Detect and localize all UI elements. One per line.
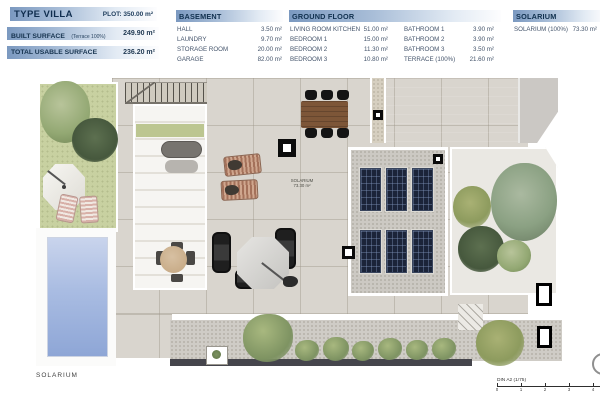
dining-chair	[337, 128, 349, 138]
solarium-area-label-line2: 73.30 m²	[286, 184, 318, 189]
outdoor-sofa	[161, 141, 202, 158]
room-area: 20.00 m²	[258, 46, 282, 53]
room-area: 3.50 m²	[261, 26, 282, 33]
room-area: 82.00 m²	[258, 56, 282, 63]
room-label: LIVING ROOM KITCHEN	[290, 26, 360, 33]
total-usable-surface-bar: TOTAL USABLE SURFACE 236.20 m²	[7, 46, 159, 59]
dining-chair	[305, 90, 317, 100]
dining-chair	[321, 128, 333, 138]
room-label: BATHROOM 3	[404, 46, 444, 53]
utility-box	[537, 326, 552, 348]
table-row: TERRACE (100%) 21.60 m²	[403, 54, 495, 64]
room-label: LAUNDRY	[177, 36, 206, 43]
room-area: 21.60 m²	[470, 56, 494, 63]
room-area: 3.50 m²	[473, 46, 494, 53]
exterior-stairs	[458, 304, 483, 330]
scale-bar	[497, 386, 600, 387]
room-area: 10.80 m²	[364, 56, 388, 63]
room-label: GARAGE	[177, 56, 203, 63]
parasol-hub	[62, 185, 66, 189]
basement-title: BASEMENT	[179, 12, 222, 21]
roof-lower-floor	[386, 78, 520, 143]
coffee-table	[165, 160, 198, 173]
basement-title-bar: BASEMENT	[176, 10, 283, 22]
solar-panel	[360, 168, 381, 211]
room-label: TERRACE (100%)	[404, 56, 455, 63]
solarium-section: SOLARIUM SOLARIUM (100%) 73.30 m²	[513, 10, 600, 35]
scale-tick	[497, 383, 498, 386]
solarium-area-label: SOLARIUM 73.30 m²	[286, 179, 318, 189]
solarium-title: SOLARIUM	[516, 12, 557, 21]
room-area: 3.90 m²	[473, 36, 494, 43]
table-row: HALL 3.50 m²	[176, 25, 283, 35]
room-label: STORAGE ROOM	[177, 46, 228, 53]
skylight-marker	[278, 139, 296, 157]
bush	[497, 240, 531, 272]
ground-floor-left-column: LIVING ROOM KITCHEN 51.00 m² BEDROOM 1 1…	[289, 25, 389, 64]
ground-floor-title-bar: GROUND FLOOR	[289, 10, 501, 22]
page-title: TYPE VILLA	[14, 9, 73, 20]
solar-panel	[386, 168, 407, 211]
sun-lounger	[212, 232, 231, 273]
table-row: SOLARIUM (100%) 73.30 m²	[513, 25, 598, 35]
scale-tick	[545, 383, 546, 386]
chair	[186, 251, 195, 265]
table-row: BATHROOM 3 3.50 m²	[403, 45, 495, 55]
room-area: 9.70 m²	[261, 36, 282, 43]
scale-tick-label: 0	[494, 388, 501, 392]
scale-tick-label: 4	[590, 388, 597, 392]
olive-tree	[453, 186, 491, 228]
room-area: 3.90 m²	[473, 26, 494, 33]
floor-plan-page: TYPE VILLA PLOT: 350.00 m² BUILT SURFACE…	[0, 0, 600, 400]
room-label: BATHROOM 1	[404, 26, 444, 33]
palm-tree	[458, 226, 504, 272]
room-area: 15.00 m²	[364, 36, 388, 43]
roof-corner	[520, 78, 558, 143]
solarium-title-bar: SOLARIUM	[513, 10, 600, 22]
plot-area-value: PLOT: 350.00 m²	[103, 11, 153, 18]
tree	[476, 320, 524, 366]
column-marker	[373, 110, 383, 120]
solar-panel	[412, 168, 433, 211]
ground-floor-right-column: BATHROOM 1 3.90 m² BATHROOM 2 3.90 m² BA…	[403, 25, 495, 64]
dining-table	[301, 101, 348, 128]
swimming-pool	[47, 237, 108, 357]
tree	[491, 163, 557, 241]
ground-floor-section: GROUND FLOOR LIVING ROOM KITCHEN 51.00 m…	[289, 10, 501, 64]
room-label: BEDROOM 1	[290, 36, 327, 43]
table-row: BEDROOM 2 11.30 m²	[289, 45, 389, 55]
room-area: 51.00 m²	[364, 26, 388, 33]
built-surface-value: 249.90 m²	[123, 30, 155, 37]
table-row: STORAGE ROOM 20.00 m²	[176, 45, 283, 55]
scale-tick	[569, 383, 570, 386]
palm-tree	[72, 118, 118, 162]
table-row: BEDROOM 1 15.00 m²	[289, 35, 389, 45]
ground-floor-columns: LIVING ROOM KITCHEN 51.00 m² BEDROOM 1 1…	[289, 25, 501, 64]
scale-tick	[521, 383, 522, 386]
table-row: BATHROOM 2 3.90 m²	[403, 35, 495, 45]
solar-panel	[412, 230, 433, 273]
utility-box	[536, 283, 552, 306]
ground-floor-title: GROUND FLOOR	[292, 12, 354, 21]
scale-tick	[593, 383, 594, 386]
table-row: BEDROOM 3 10.80 m²	[289, 54, 389, 64]
solar-panel	[360, 230, 381, 273]
room-area: 11.30 m²	[364, 46, 388, 53]
built-surface-label-group: BUILT SURFACE (Terrace 100%)	[11, 25, 106, 43]
total-surface-value: 236.20 m²	[123, 49, 155, 56]
room-label: BEDROOM 3	[290, 56, 327, 63]
basement-section: BASEMENT HALL 3.50 m² LAUNDRY 9.70 m² ST…	[176, 10, 283, 64]
solarium-rows: SOLARIUM (100%) 73.30 m²	[513, 25, 600, 35]
terrace-tiles-poolside	[112, 314, 172, 358]
pergola-stair-line	[125, 82, 155, 104]
plant	[212, 350, 221, 359]
column-marker	[433, 154, 443, 164]
sun-lounger	[79, 195, 99, 223]
dining-chair	[321, 90, 333, 100]
built-surface-note: (Terrace 100%)	[71, 34, 105, 40]
room-area: 73.30 m²	[573, 26, 597, 33]
total-surface-label: TOTAL USABLE SURFACE	[11, 49, 97, 56]
column-marker	[342, 246, 355, 259]
dining-chair	[337, 90, 349, 100]
table-row: GARAGE 82.00 m²	[176, 54, 283, 64]
type-villa-bar: TYPE VILLA PLOT: 350.00 m²	[10, 7, 157, 21]
solarium-floor-label: SOLARIUM	[36, 372, 78, 379]
round-table	[160, 246, 187, 273]
scale-tick-label: 3	[566, 388, 573, 392]
room-label: SOLARIUM (100%)	[514, 26, 568, 33]
table-row: BATHROOM 1 3.90 m²	[403, 25, 495, 35]
north-compass-icon	[592, 353, 600, 375]
basement-rows: HALL 3.50 m² LAUNDRY 9.70 m² STORAGE ROO…	[176, 25, 283, 64]
scale-tick-label: 2	[542, 388, 549, 392]
dining-chair	[305, 128, 317, 138]
room-label: HALL	[177, 26, 192, 33]
planter-strip	[136, 124, 204, 137]
chair	[171, 274, 183, 282]
solar-panel	[386, 230, 407, 273]
scale-tick-label: 1	[518, 388, 525, 392]
room-label: BATHROOM 2	[404, 36, 444, 43]
table-row: LIVING ROOM KITCHEN 51.00 m²	[289, 25, 389, 35]
table-row: LAUNDRY 9.70 m²	[176, 35, 283, 45]
built-surface-bar: BUILT SURFACE (Terrace 100%) 249.90 m²	[7, 27, 159, 40]
room-label: BEDROOM 2	[290, 46, 327, 53]
built-surface-label: BUILT SURFACE	[11, 33, 65, 40]
